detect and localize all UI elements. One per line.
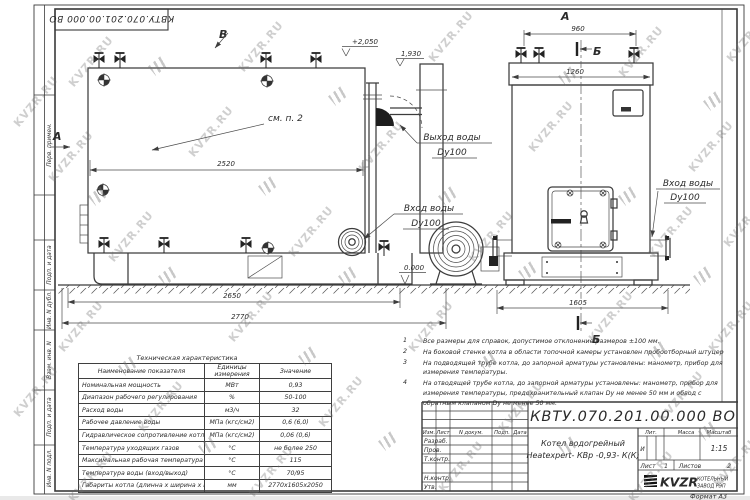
furnace-door [548, 187, 617, 251]
table-row: Габариты котла (длинна х ширина х высота… [79, 480, 332, 493]
role-ncontrol: Н.контр. [424, 475, 451, 482]
tech-cell-unit: МПа (кгс/см2) [205, 429, 260, 442]
note-number: 3 [403, 359, 423, 379]
role-developer: Разраб. [424, 438, 448, 445]
valve-icon [629, 48, 640, 63]
water-inlet2-dn: Dy100 [670, 193, 700, 203]
tech-cell-name: Номинальная мощность [79, 379, 205, 392]
drain-valve-icon [99, 238, 110, 253]
sheet-value: 1 [664, 463, 668, 470]
margin-label-podp-data-2: Подп. и дата [47, 397, 53, 437]
note-number: 1 [403, 337, 423, 347]
margin-label-inv-dubl: Инв. N дубл. [47, 291, 53, 329]
tech-cell-name: Температура воды (вход/выход) [79, 467, 205, 480]
view-label-a-left: А [52, 130, 62, 143]
bolt-icon [600, 242, 606, 248]
rear-left-flange [489, 235, 512, 266]
water-inlet-label: Вход воды [404, 204, 454, 214]
note-item: 4 На отводящей трубе котла, до запорной … [403, 379, 733, 408]
title-block: Изм. Лист N докум. Подп. Дата Разраб. Пр… [422, 402, 738, 500]
table-row: Максимальная рабочая температура воды °С… [79, 454, 332, 467]
tech-cell-value: 0,93 [260, 379, 332, 392]
tech-cell-name: Диапазон рабочего регулирования [79, 391, 205, 404]
sheet-label: Лист [639, 463, 656, 470]
tech-cell-value: 0,06 (0,6) [260, 429, 332, 442]
valve-icon [516, 48, 527, 63]
note-item: 3 На подводящей трубе котла, до запорной… [403, 359, 733, 379]
margin-label-vzam-inv: Взам. инв. N [47, 341, 53, 379]
tech-cell-unit: °С [205, 467, 260, 480]
valve-icon [261, 53, 272, 68]
tech-cell-name: Расход воды [79, 404, 205, 417]
level-2050: +2,050 [352, 38, 378, 46]
mass-label: Масса [678, 430, 695, 436]
tech-characteristics: Техническая характеристика Наименование … [78, 354, 331, 493]
product-name-line2: Heatexpert- КВр -0,93- К(К) [526, 451, 639, 460]
rev-col-izm: Изм. [423, 430, 435, 436]
margin-label-perv-primen: Перв. примен. [47, 123, 53, 167]
rev-col-list: Лист [435, 430, 450, 436]
sheets-label: Листов [678, 463, 702, 470]
note-text: На отводящей трубе котла, до запорной ар… [423, 379, 733, 408]
tech-cell-name: Температура уходящих газов [79, 442, 205, 455]
notes-list: 1 Все размеры для справок, допустимое от… [403, 337, 733, 409]
see-note-callout: см. п. 2 [268, 114, 303, 124]
table-row: Температура воды (вход/выход) °С 70/95 [79, 467, 332, 480]
kvzr-logo: KVZR КОТЕЛЬНЫЙ ЗАВОД РЭП [644, 475, 729, 490]
dim-2770: 2770 [231, 313, 249, 321]
dim-1605: 1605 [569, 299, 587, 307]
outlet-elbow [376, 108, 394, 126]
company-sub2: ЗАВОД РЭП [697, 484, 726, 490]
dim-2520: 2520 [217, 160, 235, 168]
tech-table: Наименование показателя Единицы измерени… [78, 363, 332, 493]
scale-value: 1:15 [711, 444, 728, 453]
note-item: 1 Все размеры для справок, допустимое от… [403, 337, 733, 347]
tech-col-name: Наименование показателя [79, 364, 205, 379]
view-label-a-top: А [560, 10, 570, 23]
rev-col-doc: N докум. [459, 430, 483, 436]
dim-960: 960 [571, 25, 585, 33]
callouts: В А А Б Б см. п. 2 Выход воды Dy100 Вход… [50, 10, 720, 346]
note-text: На боковой стенке котла в области топочн… [423, 348, 733, 358]
margin-label-inv-podl: Инв. N подл. [47, 449, 53, 487]
bolt-icon [567, 190, 573, 196]
water-outlet-dn: Dy100 [437, 148, 467, 158]
section-label-b-top: Б [593, 45, 601, 58]
bolt-icon [555, 242, 561, 248]
note-number: 4 [403, 379, 423, 408]
tech-cell-name: Рабочее давление воды [79, 417, 205, 430]
tech-cell-value: 50-100 [260, 391, 332, 404]
dim-2650: 2650 [223, 292, 241, 300]
datum-mark-icon [97, 73, 111, 87]
datum-mark-icon [260, 74, 274, 88]
tech-cell-unit: МПа (кгс/см2) [205, 417, 260, 430]
company-name: KVZR [660, 475, 698, 490]
tech-cell-unit: % [205, 391, 260, 404]
note-number: 2 [403, 348, 423, 358]
valve-icon [311, 53, 322, 68]
role-tcontrol: Т.контр. [424, 456, 450, 463]
water-inlet-dn: Dy100 [411, 219, 441, 229]
role-approver: Утв. [424, 484, 437, 491]
note-text: Все размеры для справок, допустимое откл… [423, 337, 733, 347]
tech-col-value: Значение [260, 364, 332, 379]
format-note: Формат А3 [690, 493, 727, 500]
role-checker: Пров. [424, 447, 442, 454]
drain-valve-icon [159, 238, 170, 253]
rev-col-date: Дата [512, 430, 526, 436]
dim-1260: 1260 [566, 68, 584, 76]
bolt-icon [600, 190, 606, 196]
tech-cell-value: 70/95 [260, 467, 332, 480]
door-handle [551, 219, 571, 224]
valve-icon [115, 53, 126, 68]
valve-icon [94, 53, 105, 68]
datum-mark-icon [96, 183, 110, 197]
tech-cell-unit: °С [205, 454, 260, 467]
tech-cell-unit: м3/ч [205, 404, 260, 417]
company-sub1: КОТЕЛЬНЫЙ [697, 476, 729, 483]
tech-cell-value: 32 [260, 404, 332, 417]
table-row: Температура уходящих газов °С не более 2… [79, 442, 332, 455]
drain-valve-icon [241, 238, 252, 253]
lit-value: И [640, 446, 645, 453]
table-row: Номинальная мощность МВт 0,93 [79, 379, 332, 392]
product-name-line1: Котел водогрейный [541, 439, 625, 448]
rev-col-sign: Подп. [494, 430, 510, 436]
tech-cell-value: 0,6 (6,0) [260, 417, 332, 430]
tech-cell-value: не более 250 [260, 442, 332, 455]
level-0000: 0.000 [404, 264, 425, 272]
tech-cell-name: Максимальная рабочая температура воды [79, 454, 205, 467]
doc-number: КВТУ.070.201.00.000 ВО [530, 409, 736, 425]
valve-icon [534, 48, 545, 63]
tech-cell-unit: °С [205, 442, 260, 455]
scale-label: Масштаб [707, 430, 732, 436]
table-row: Гидравлическое сопротивление котла МПа (… [79, 429, 332, 442]
tech-table-title: Техническая характеристика [82, 354, 292, 363]
table-row: Расход воды м3/ч 32 [79, 404, 332, 417]
inlet-flange [339, 229, 366, 256]
level-1930: 1,930 [401, 50, 422, 58]
lit-label: Лит. [644, 430, 657, 436]
water-outlet-label: Выход воды [423, 133, 480, 143]
tech-cell-unit: мм [205, 480, 260, 493]
drawing-sheet: КВТУ.070.201.00.000 ВО [0, 0, 750, 500]
tech-cell-name: Гидравлическое сопротивление котла [79, 429, 205, 442]
sheets-value: 2 [727, 463, 731, 470]
table-row: Диапазон рабочего регулирования % 50-100 [79, 391, 332, 404]
tech-col-units: Единицы измерения [205, 364, 260, 379]
drain-valve-icon [379, 241, 390, 256]
tech-cell-value: 115 [260, 454, 332, 467]
tech-cell-value: 2770х1605х2050 [260, 480, 332, 493]
water-inlet2-label: Вход воды [663, 179, 713, 189]
note-item: 2 На боковой стенке котла в области топо… [403, 348, 733, 358]
stamp-doc-number: КВТУ.070.201.00.000 ВО [49, 13, 174, 23]
margin-label-podp-data-1: Подп. и дата [47, 245, 53, 285]
ground-line [58, 285, 690, 294]
tech-cell-unit: МВт [205, 379, 260, 392]
table-row: Рабочее давление воды МПа (кгс/см2) 0,6 … [79, 417, 332, 430]
boiler-side-view [80, 53, 447, 284]
rear-right-flange [650, 235, 670, 261]
note-text: На подводящей трубе котла, до запорной а… [423, 359, 733, 379]
tech-cell-name: Габариты котла (длинна х ширина х высота… [79, 480, 205, 493]
